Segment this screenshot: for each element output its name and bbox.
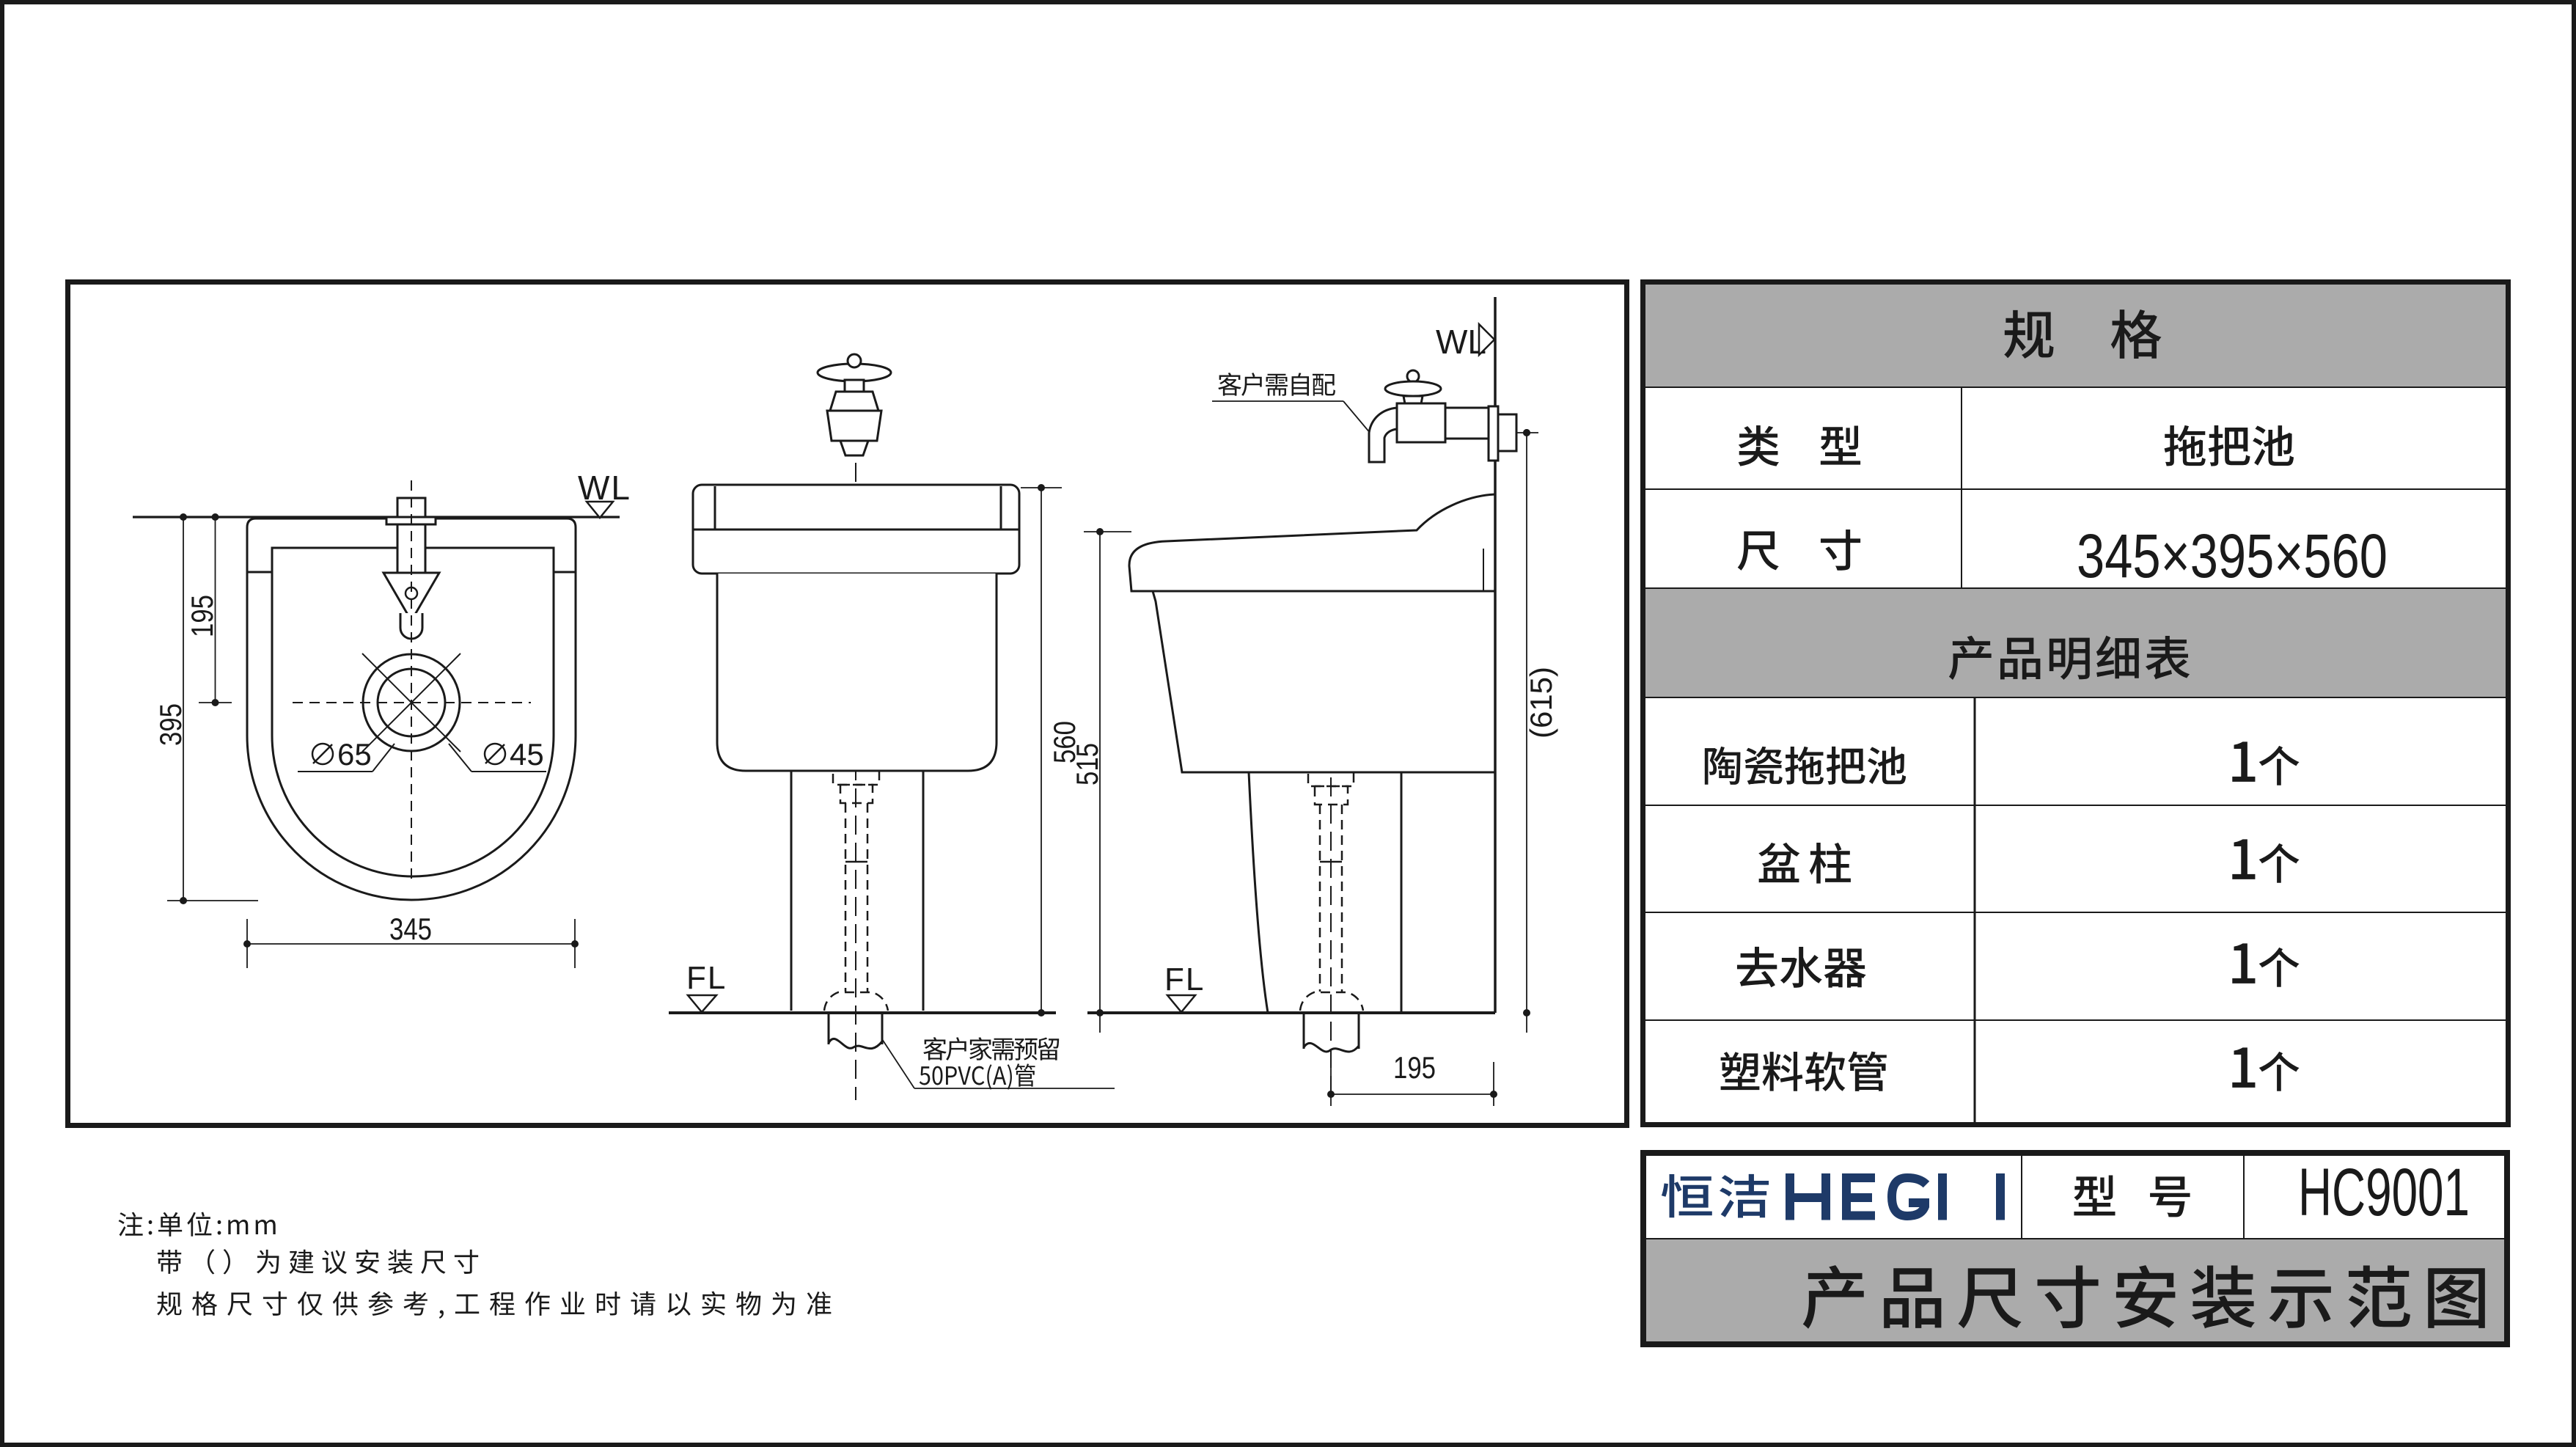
svg-text:HC9001: HC9001 — [2298, 1155, 2470, 1230]
svg-text:345: 345 — [389, 912, 432, 946]
svg-text:65: 65 — [337, 737, 372, 772]
svg-text:(615): (615) — [1524, 667, 1558, 739]
svg-text:FL: FL — [686, 960, 727, 996]
svg-text:345×395×560: 345×395×560 — [2077, 521, 2388, 590]
svg-text:195: 195 — [185, 595, 219, 637]
svg-text:515: 515 — [1070, 743, 1104, 785]
svg-text:195: 195 — [1393, 1050, 1436, 1085]
svg-text:45: 45 — [510, 737, 544, 772]
svg-text:395: 395 — [153, 703, 188, 746]
svg-text:FL: FL — [1164, 961, 1205, 997]
